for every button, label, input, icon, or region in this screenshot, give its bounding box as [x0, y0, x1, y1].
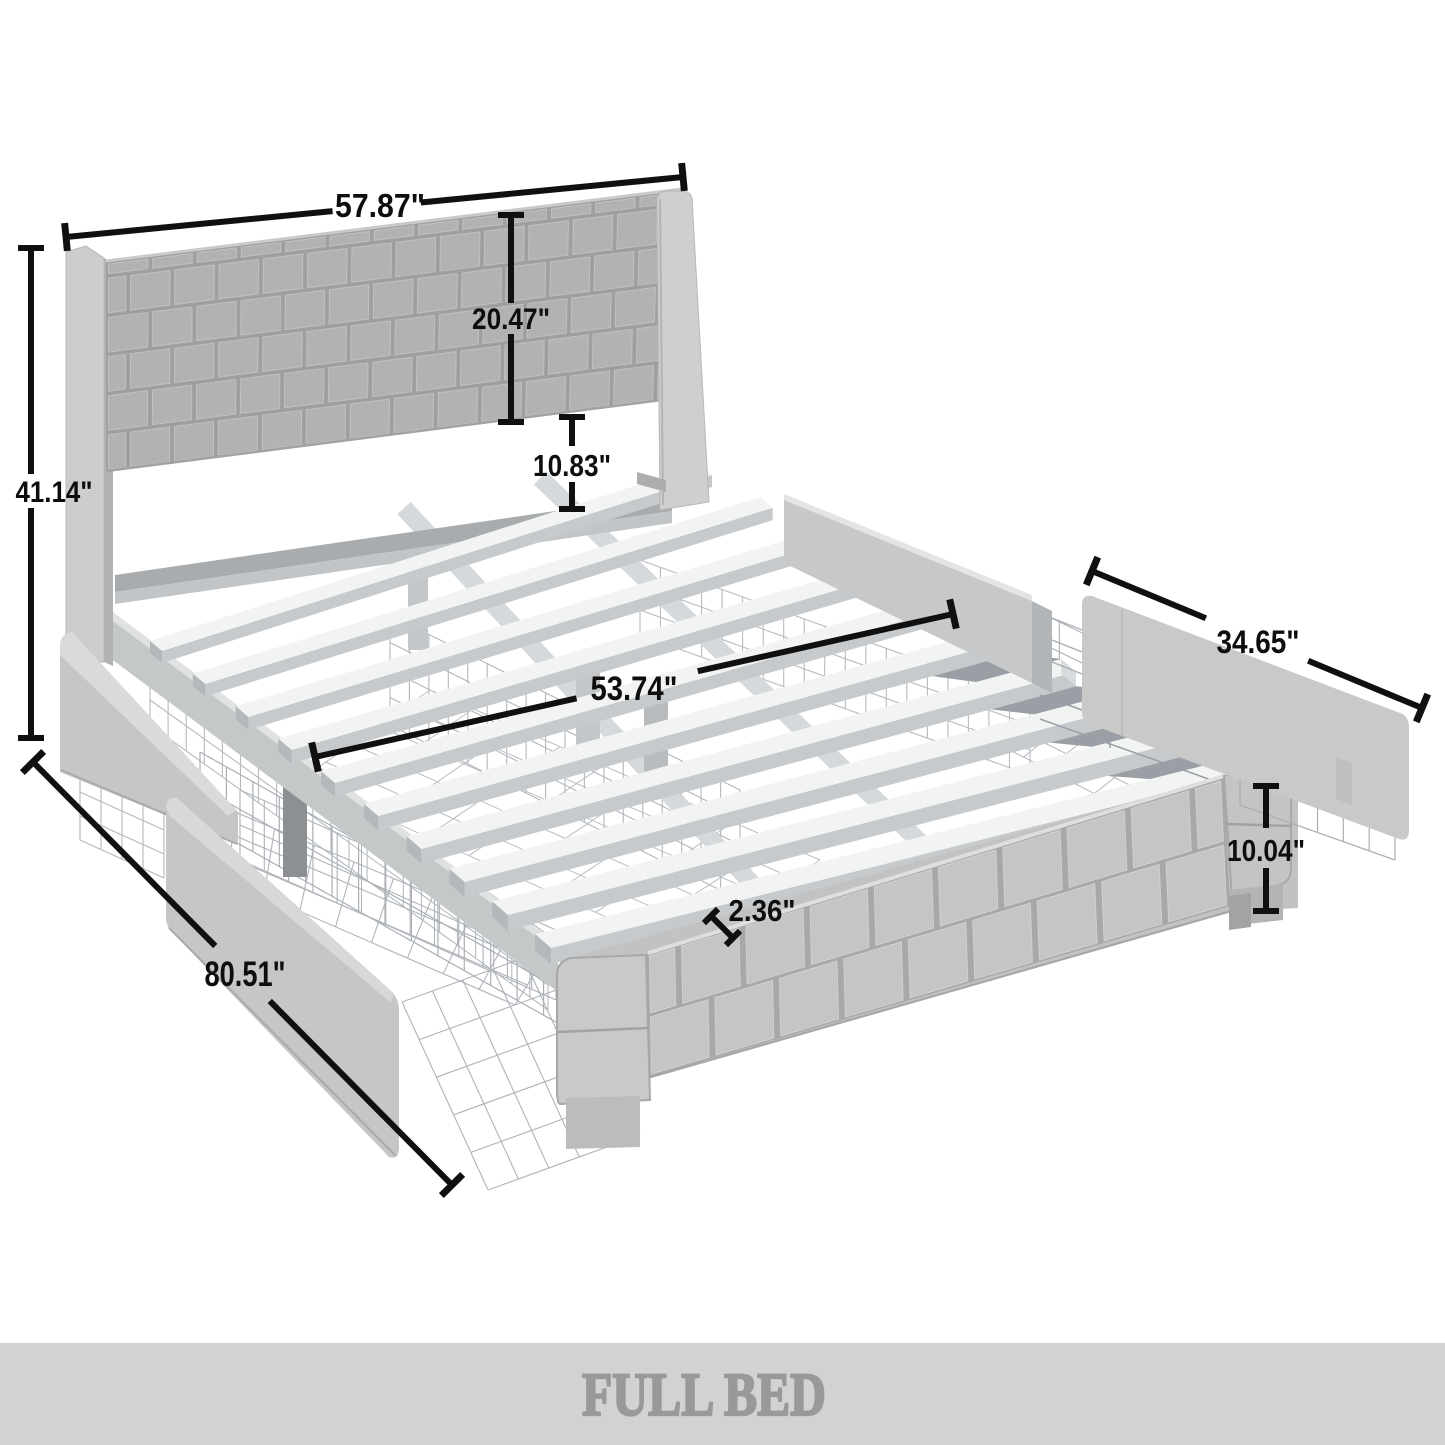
svg-text:20.47": 20.47": [472, 303, 550, 336]
svg-text:2.36": 2.36": [729, 893, 796, 928]
svg-text:41.14": 41.14": [16, 476, 93, 509]
svg-text:57.87": 57.87": [335, 187, 425, 224]
svg-text:34.65": 34.65": [1217, 624, 1300, 660]
svg-text:FULL BED: FULL BED: [582, 1362, 826, 1429]
svg-text:80.51": 80.51": [205, 955, 286, 994]
svg-text:10.04": 10.04": [1227, 833, 1305, 868]
svg-text:53.74": 53.74": [591, 670, 678, 708]
svg-text:10.83": 10.83": [533, 448, 611, 483]
